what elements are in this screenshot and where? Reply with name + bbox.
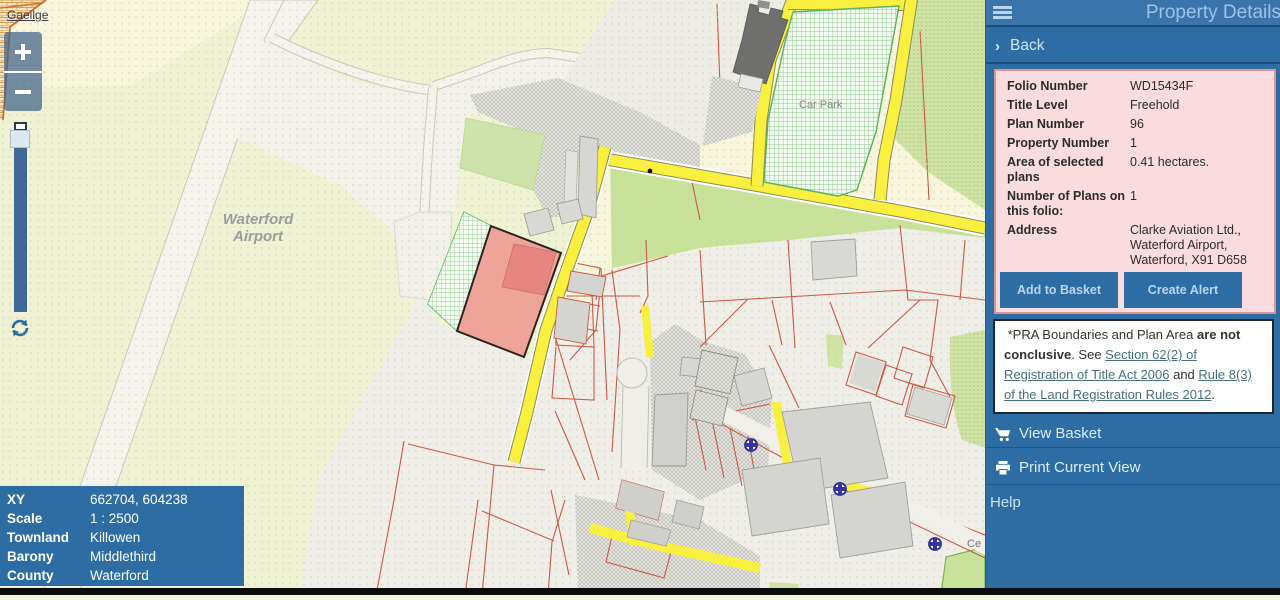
svg-text:Waterford: Waterford [223,211,294,228]
svg-text:Airport: Airport [232,228,284,245]
svg-text:Ce: Ce [967,538,981,550]
svg-text:Car Park: Car Park [799,99,843,111]
